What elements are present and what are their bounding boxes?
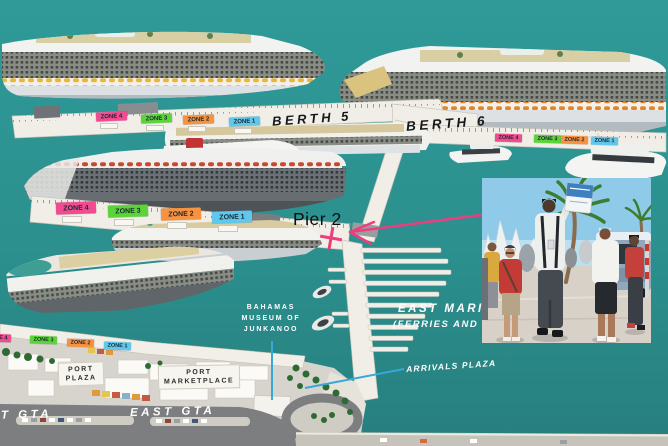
- pier-subtag: [218, 225, 238, 232]
- zone-chip: ZONE 4: [96, 111, 127, 121]
- port-plaza-line2: PLAZA: [60, 373, 102, 383]
- museum-label-line2: MUSEUM OF: [229, 313, 313, 324]
- port-marketplace-line2: MARKETPLACE: [160, 376, 238, 386]
- gta-label: T GTA: [1, 408, 52, 421]
- pier-2-label: Pier 2: [293, 209, 342, 230]
- zone-chip: ZONE 3: [108, 204, 148, 217]
- pier-subtag: [114, 219, 134, 226]
- zone-chip: ZONE 4: [495, 134, 522, 143]
- zone-chip: ZONE 3: [141, 113, 172, 123]
- zone-chip: ZONE 1: [591, 137, 618, 146]
- zone-chip: ZONE 1: [104, 342, 131, 351]
- pier-subtag: [188, 126, 206, 132]
- east-marina-label: EAST MARI: [398, 303, 484, 315]
- museum-label-line3: JUNKANOO: [229, 324, 313, 335]
- zone-chip: ZONE 1: [212, 210, 252, 223]
- zone-chip: ZONE 3: [534, 135, 561, 144]
- museum-label-line1: BAHAMAS: [229, 302, 313, 313]
- traffic-pole: [645, 240, 649, 298]
- east-gta-label: EAST GTA: [130, 405, 216, 419]
- zone-chip: ZONE 2: [183, 114, 214, 124]
- zone-chip: ZONE 4: [0, 334, 11, 343]
- pier-subtag: [146, 125, 164, 131]
- zone-chip: ZONE 3: [30, 336, 57, 345]
- pier-subtag: [167, 222, 187, 229]
- port-plaza-label: PORT PLAZA: [58, 361, 105, 387]
- pier-subtag: [100, 123, 118, 129]
- zone-chip: ZONE 2: [161, 207, 201, 220]
- pier-subtag: [234, 128, 252, 134]
- museum-label: BAHAMAS MUSEUM OF JUNKANOO: [229, 302, 313, 335]
- port-marketplace-label: PORT MARKETPLACE: [158, 364, 240, 389]
- zone-chip: ZONE 2: [561, 136, 588, 145]
- wharf-strip: [296, 432, 668, 446]
- cruise-port-map: BERTH 5 BERTH 6 Pier 2 BAHAMAS MUSEUM OF…: [0, 0, 668, 446]
- person-red-top: [625, 235, 645, 330]
- pier-subtag: [62, 216, 82, 223]
- east-marina-sublabel: (FERRIES AND: [393, 319, 478, 330]
- zone-chip: ZONE 2: [67, 339, 94, 348]
- photo-inset: [480, 178, 658, 344]
- zone-chip: ZONE 1: [229, 116, 260, 126]
- zone-chip: ZONE 4: [56, 201, 96, 214]
